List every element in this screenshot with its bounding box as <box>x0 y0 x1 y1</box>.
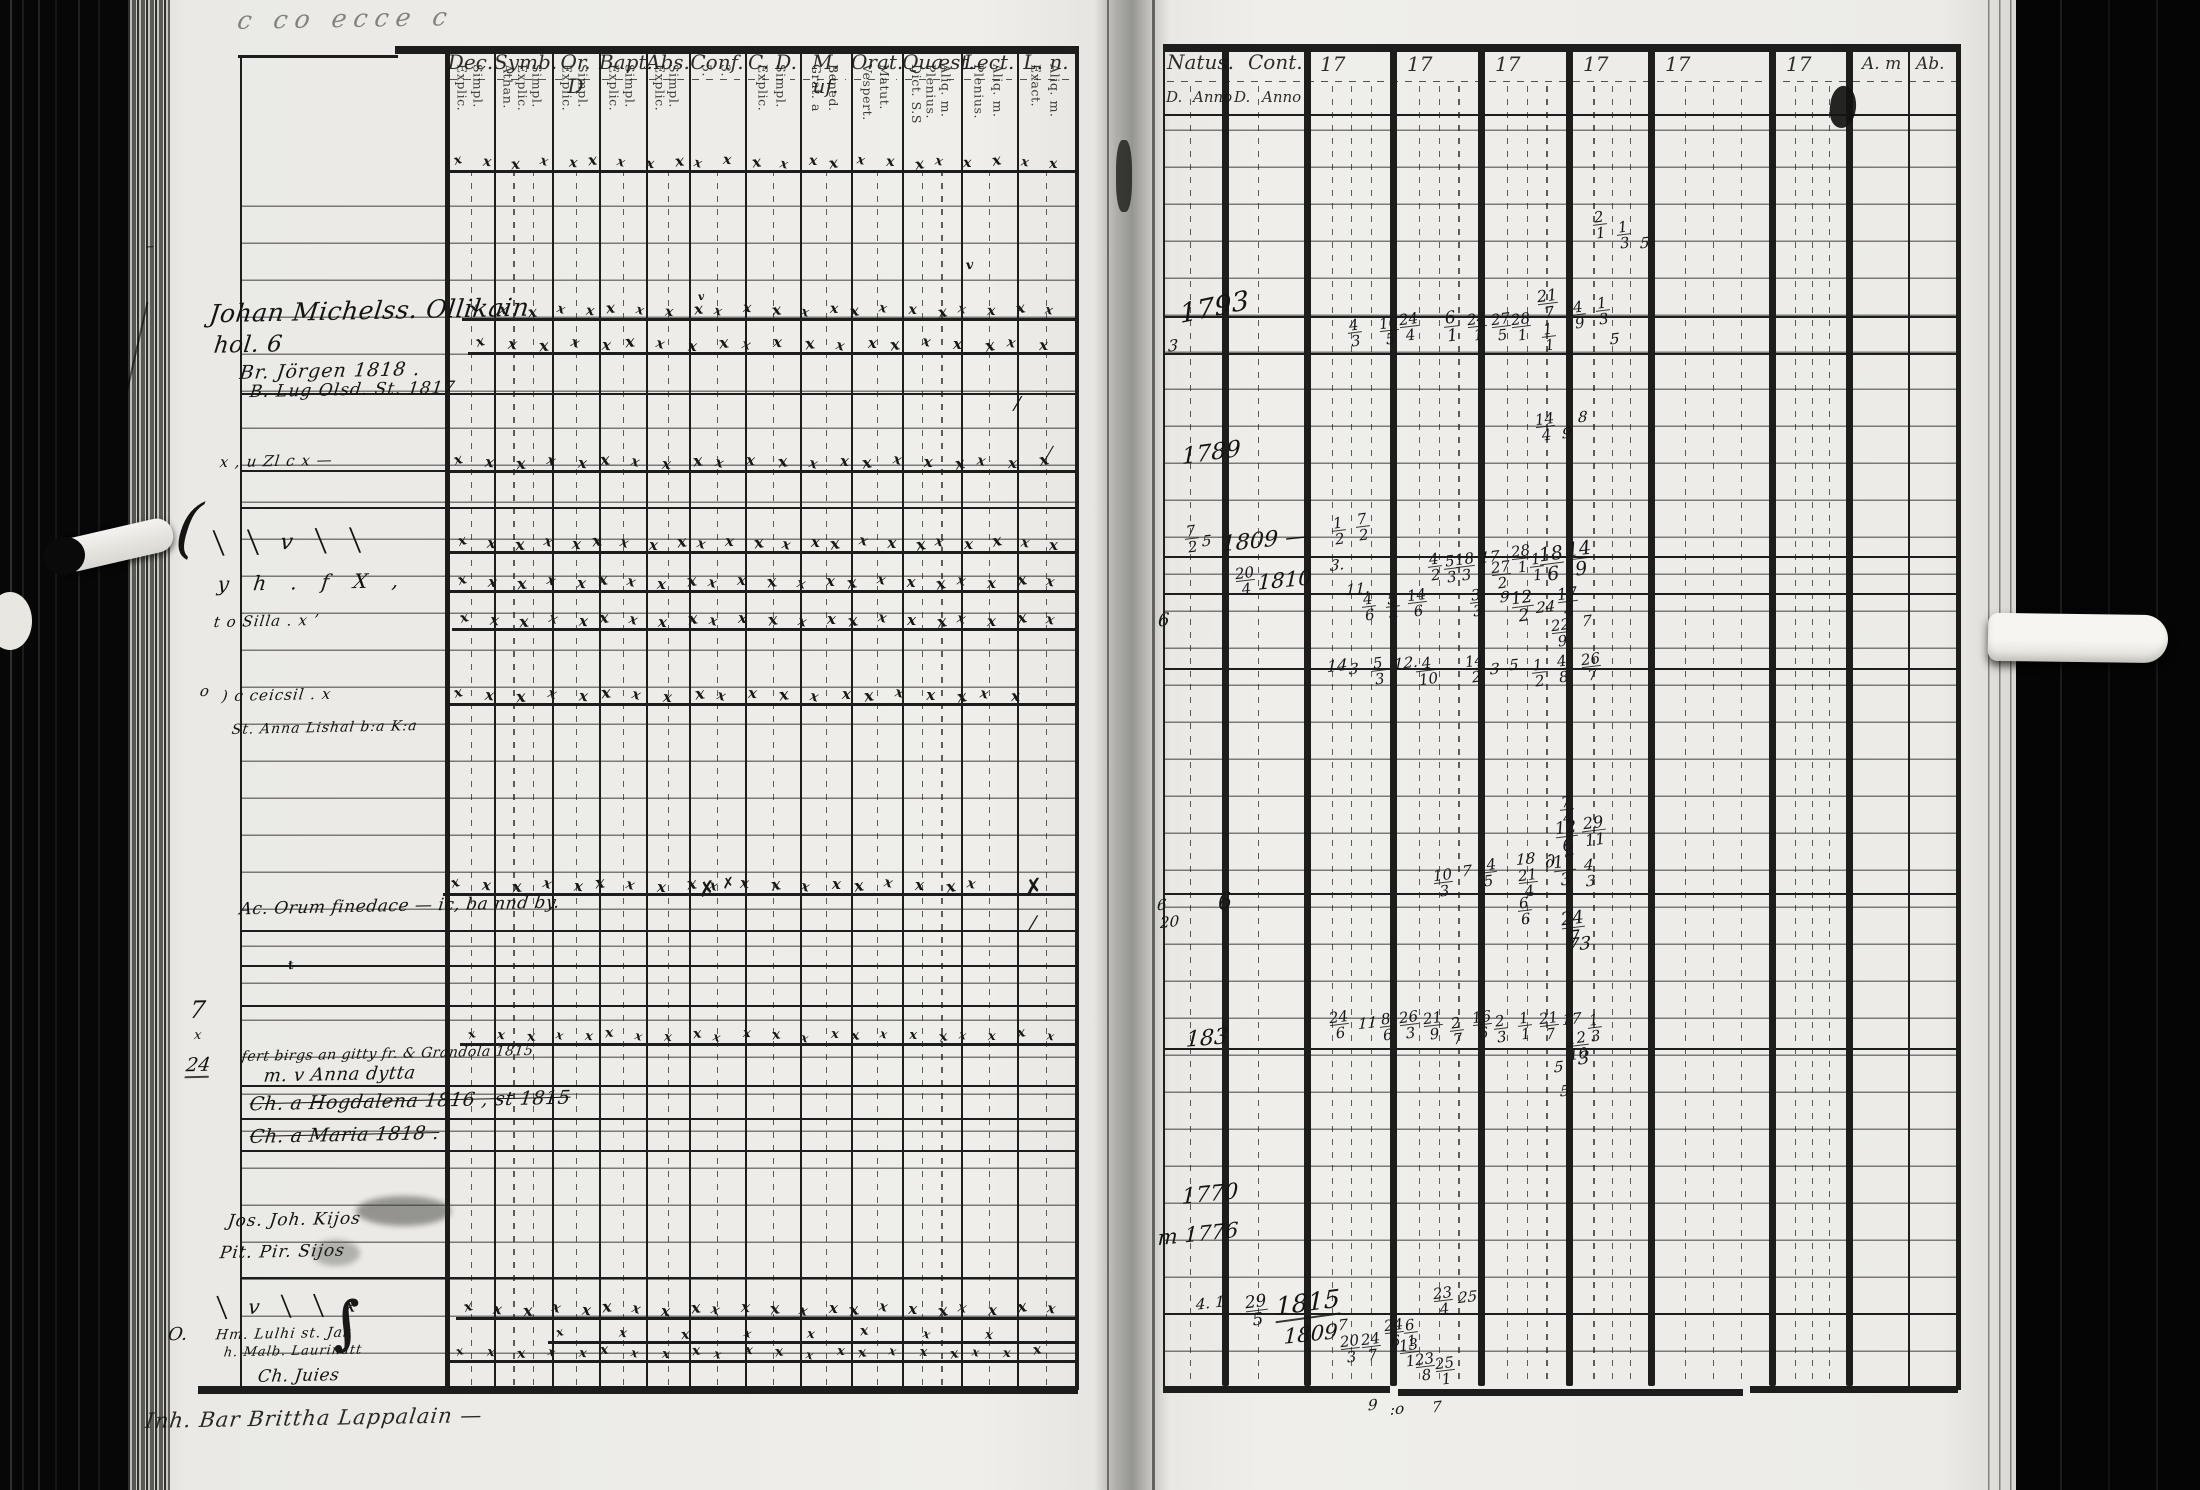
entry-line <box>460 1043 1075 1046</box>
column-border <box>599 48 601 1390</box>
gutter-fold-line <box>1107 0 1109 1490</box>
x-mark: x <box>806 1327 815 1343</box>
x-mark: x <box>578 1346 587 1362</box>
entry-line <box>446 470 1075 473</box>
x-mark: x <box>516 574 527 594</box>
year-subdivider <box>1419 86 1420 1386</box>
annotation: 3 <box>1586 871 1596 890</box>
x-mark: x <box>484 686 494 705</box>
x-mark: x <box>599 449 611 469</box>
year-column-label: 17 <box>1320 52 1360 76</box>
year-subdivider <box>1458 86 1459 1386</box>
x-mark: x <box>657 575 667 593</box>
x-mark: x <box>987 574 996 592</box>
register-book-scan: c co ecce c Inh. Bar Brittha Lappalain —… <box>0 0 2200 1490</box>
x-mark: x <box>645 156 654 172</box>
column-sublabel: Aliq. m. <box>1048 64 1063 168</box>
fraction-date: 2911 <box>1580 814 1608 849</box>
x-mark: x <box>486 1345 495 1361</box>
year-subdivider <box>1795 86 1796 1386</box>
year-subdivider <box>1351 86 1352 1386</box>
x-mark: x <box>689 1297 701 1317</box>
x-mark: x <box>738 609 748 627</box>
year-subdivider <box>1439 86 1440 1386</box>
column-sublabel: Bened. <box>826 64 841 168</box>
entry-line <box>448 1360 1075 1363</box>
register-row-name: ) c ceicsil . x <box>221 685 333 705</box>
x-mark: x <box>686 570 698 590</box>
x-mark: x <box>1019 154 1029 170</box>
column-label: L. n. <box>1017 50 1075 74</box>
x-mark: x <box>615 154 626 170</box>
x-mark: x <box>489 611 499 630</box>
x-mark: x <box>662 455 672 473</box>
x-mark: x <box>590 530 602 550</box>
register-row-name: Ch. Juies <box>257 1365 341 1387</box>
annotation: 5 <box>1610 329 1620 348</box>
fraction-date: 229 <box>1550 617 1573 650</box>
column-border <box>494 48 496 1390</box>
year-column-label: 17 <box>1665 52 1705 76</box>
column-border <box>1017 48 1019 1390</box>
year-subdivider <box>1713 86 1714 1386</box>
x-mark: x <box>693 683 705 703</box>
annotation: 14 <box>1327 655 1348 676</box>
x-mark: x <box>576 574 586 593</box>
annotation: 3 <box>1349 659 1359 678</box>
column-sublabel: Simpl. <box>622 64 637 168</box>
row-line <box>1165 1048 1956 1050</box>
x-mark: x <box>515 687 526 707</box>
x-mark: x <box>594 872 606 892</box>
fraction-date: 244 <box>1398 311 1421 344</box>
column-border <box>745 48 747 1390</box>
year-column-label: 17 <box>1583 52 1623 76</box>
row-line <box>241 1150 1075 1152</box>
x-mark: x <box>773 333 783 351</box>
fraction-date: 275 <box>1490 311 1513 344</box>
fraction-date: 142 <box>1464 653 1487 686</box>
column-sublabel: Simpl. <box>470 64 485 168</box>
year-subdivider <box>1685 86 1686 1386</box>
ink-smudge <box>356 1196 451 1226</box>
fraction-date: 186 <box>1538 544 1567 585</box>
x-mark: x <box>585 1029 594 1045</box>
column-border <box>646 48 648 1390</box>
x-mark: x <box>830 301 839 317</box>
fraction-date: 263 <box>1398 1009 1421 1042</box>
stray-mark: t <box>287 958 294 973</box>
entry-line <box>452 628 1075 631</box>
x-mark: x <box>578 612 588 631</box>
x-mark: x <box>648 536 658 554</box>
x-mark: x <box>586 303 595 320</box>
fraction-date: 183 <box>1454 551 1477 584</box>
fraction-date: 246 <box>1328 1009 1351 1042</box>
column-sublabel: Explic. <box>652 64 667 168</box>
x-mark: x <box>618 1326 627 1342</box>
book-strap-right <box>1988 613 2169 664</box>
year-subdivider <box>1593 86 1594 1386</box>
x-mark: x <box>887 534 896 552</box>
entry-line <box>456 1317 1075 1320</box>
x-mark: x <box>811 533 820 551</box>
x-mark: x <box>1038 336 1047 354</box>
x-mark: x <box>601 1296 613 1316</box>
x-mark: x <box>988 1029 996 1044</box>
x-mark: x <box>826 572 835 590</box>
x-mark: x <box>578 454 588 473</box>
fraction-date: 203 <box>1339 1333 1362 1366</box>
column-label: Conf. <box>689 50 745 74</box>
x-mark: x <box>908 1300 917 1318</box>
x-mark: x <box>687 608 699 628</box>
x-mark: x <box>909 1028 917 1043</box>
table-border <box>1956 44 1961 1390</box>
fraction-date: 105 <box>1378 315 1401 348</box>
tail-divider <box>1908 48 1910 1386</box>
x-mark: x <box>752 532 764 552</box>
stray-mark: ✗ <box>696 875 717 902</box>
x-mark: x <box>518 612 529 632</box>
year-column-label: 17 <box>1786 52 1826 76</box>
annotation: 17 <box>1562 1009 1582 1029</box>
right-page-edge <box>1984 0 2016 1490</box>
x-mark: x <box>487 573 497 592</box>
x-mark: x <box>985 1328 994 1343</box>
x-mark: x <box>481 876 491 895</box>
entry-line <box>468 352 1075 355</box>
register-row-name: t o Silla . x ’ <box>213 611 321 631</box>
column-border <box>902 48 904 1390</box>
year-subdivider <box>1527 86 1528 1386</box>
x-mark: x <box>486 534 496 553</box>
margin-mark: x <box>193 1028 202 1043</box>
x-mark: x <box>926 686 935 704</box>
column-label: Lect. <box>961 50 1017 74</box>
x-mark: x <box>571 535 581 554</box>
year-subdivider <box>1812 86 1813 1386</box>
margin-mark: 7 <box>188 996 207 1024</box>
row-line <box>241 1005 1075 1007</box>
annotation: 25 <box>1458 1287 1478 1307</box>
fraction-date: 251 <box>1434 1355 1457 1388</box>
x-mark: x <box>538 336 549 356</box>
book-spine-left <box>0 0 128 1490</box>
column-sublabel: Exact. <box>1028 64 1043 168</box>
x-mark: x <box>920 1345 928 1360</box>
x-mark: x <box>1003 1346 1011 1361</box>
annotation: 4. 1 <box>1196 1292 1225 1313</box>
table-border <box>1163 1386 1390 1393</box>
column-sublabel: Plenius. <box>924 64 939 168</box>
x-mark: x <box>658 613 668 631</box>
entry-line <box>446 703 1075 706</box>
x-mark: x <box>908 302 916 318</box>
column-sublabel: Dict. S.S <box>909 64 924 168</box>
x-mark: x <box>907 611 916 629</box>
x-mark: x <box>581 1301 591 1320</box>
x-mark: x <box>987 303 996 319</box>
x-mark: x <box>933 153 943 169</box>
x-mark: x <box>482 154 492 171</box>
x-mark: x <box>1011 687 1020 705</box>
x-mark: x <box>522 1301 533 1321</box>
x-mark: x <box>664 304 673 320</box>
year-column-label: 17 <box>1495 52 1535 76</box>
x-mark: x <box>987 1301 996 1319</box>
register-row-name: m. v Anna dytta <box>263 1062 417 1086</box>
annotation: 183 <box>1185 1024 1229 1053</box>
row-line <box>241 930 1075 932</box>
annotation: 24 <box>1536 597 1556 617</box>
x-mark: x <box>673 151 684 170</box>
fraction-date: 295 <box>1244 1293 1270 1330</box>
x-mark: x <box>725 532 735 550</box>
fraction-date: 241 <box>1466 311 1489 344</box>
x-mark: x <box>598 607 610 627</box>
annotation: 8 <box>1578 407 1588 426</box>
x-mark: x <box>687 337 697 355</box>
x-mark: x <box>587 151 598 170</box>
year-subdivider <box>1332 86 1333 1386</box>
x-mark: x <box>924 453 933 471</box>
row-grid <box>1165 94 1956 1386</box>
entry-line <box>450 590 1075 593</box>
column-label: C. D. <box>745 50 800 74</box>
fraction-date: 126 <box>1554 819 1580 856</box>
ink-smudge <box>312 1240 360 1266</box>
annotation: 73 <box>1568 933 1591 957</box>
x-mark: x <box>601 336 611 355</box>
annotation: 5 <box>1560 1081 1570 1100</box>
x-mark: x <box>663 688 673 706</box>
year-subdivider <box>1741 86 1742 1386</box>
column-border <box>851 48 853 1390</box>
fraction-date: 122 <box>1510 589 1536 626</box>
x-mark: x <box>837 1344 845 1359</box>
column-sublabel: Plenius. <box>972 64 987 168</box>
row-line <box>1165 893 1956 895</box>
fraction-date: 217 <box>1536 287 1560 322</box>
margin-mark: 24 <box>185 1054 212 1079</box>
column-sublabel: Explic. <box>515 64 530 168</box>
x-mark: x <box>661 1302 671 1320</box>
gutter-fold-line <box>1152 0 1155 1490</box>
year-subdivider <box>1612 86 1613 1386</box>
annotation: 7 <box>1432 1397 1442 1416</box>
annotation: 5 <box>1640 233 1650 252</box>
x-mark: x <box>744 1343 752 1358</box>
row-line <box>241 1118 1075 1120</box>
x-mark: x <box>743 300 752 316</box>
header-divider <box>1167 81 1956 82</box>
year-subdivider <box>1546 86 1547 1386</box>
column-sublabel: Matut. <box>877 64 892 168</box>
x-mark: x <box>964 535 973 553</box>
annotation: 7 <box>1462 861 1472 880</box>
column-sublabel: Simpl. <box>774 64 789 168</box>
annotation: 11 <box>1358 1013 1378 1033</box>
register-row-name: ╲ ╲ v ╲ ╲ <box>210 528 370 556</box>
annotation: ∂ <box>1545 847 1556 872</box>
cont-column-label: Cont. <box>1248 50 1318 74</box>
x-mark: x <box>661 1347 670 1362</box>
stray-mark: v <box>965 258 975 274</box>
margin-mark: O. <box>167 1324 189 1345</box>
x-mark: x <box>953 335 962 353</box>
fraction-date: 145 <box>1476 857 1499 890</box>
x-mark: x <box>597 569 609 589</box>
fraction-date: 166 <box>1471 1009 1494 1042</box>
fraction-date: 217 <box>1538 1010 1561 1043</box>
x-mark: x <box>1049 536 1059 554</box>
x-mark: x <box>676 531 688 551</box>
table-border <box>1075 46 1079 1390</box>
x-mark: x <box>963 155 972 171</box>
register-row-name: hol. 6 <box>212 331 284 358</box>
x-mark: x <box>832 875 841 893</box>
column-border <box>689 48 691 1390</box>
x-mark: x <box>723 152 732 168</box>
annotation: 6 <box>1216 889 1233 917</box>
column-border <box>552 48 554 1390</box>
fraction-date: 149 <box>1566 539 1595 580</box>
annotation: 3. <box>1330 555 1345 575</box>
x-mark: x <box>839 452 848 470</box>
fraction-date: 267 <box>1580 651 1603 684</box>
x-mark: x <box>740 1298 750 1316</box>
fraction-date: 144 <box>1534 411 1557 444</box>
x-mark: x <box>623 331 635 351</box>
x-mark: x <box>987 612 996 630</box>
x-mark: x <box>748 684 758 702</box>
annotation: 9 <box>1500 587 1510 606</box>
x-mark: x <box>915 876 924 894</box>
x-mark: x <box>515 454 526 474</box>
annotation: 3 <box>1578 1047 1590 1069</box>
x-mark: x <box>740 874 750 892</box>
fraction-date: 173 <box>1552 853 1578 890</box>
row-line <box>1165 316 1956 318</box>
fraction-date: 234 <box>1432 1285 1455 1318</box>
column-border <box>800 48 802 1390</box>
year-subdivider <box>1371 86 1372 1386</box>
book-spine-right <box>2016 0 2200 1490</box>
row-line <box>241 965 1075 967</box>
row-line <box>241 1277 1075 1279</box>
fraction-date: 103 <box>1432 867 1455 900</box>
year-subdivider <box>1630 86 1631 1386</box>
year-subdivider <box>1507 86 1508 1386</box>
annotation: 7 <box>1582 611 1592 630</box>
x-mark: x <box>827 610 836 628</box>
subcolumn-label: Anno <box>1193 88 1237 106</box>
x-mark: x <box>809 153 818 169</box>
column-sublabel: Explic. <box>607 64 622 168</box>
x-mark: x <box>737 571 747 589</box>
fraction-date: 219 <box>1422 1010 1445 1043</box>
annotation: 5 <box>1202 531 1212 550</box>
entry-line <box>462 318 1075 321</box>
subcolumn-divider <box>1258 86 1259 1386</box>
row-line <box>241 1085 1075 1087</box>
annotation: :o <box>1390 1399 1405 1419</box>
x-mark: x <box>507 335 517 354</box>
x-mark: x <box>830 1027 838 1042</box>
x-mark: x <box>1049 156 1058 172</box>
column-border <box>961 48 963 1390</box>
page-gutter <box>1094 0 1170 1490</box>
table-border <box>238 55 398 58</box>
x-mark: x <box>484 453 494 472</box>
x-mark: x <box>573 877 583 896</box>
x-mark: x <box>497 1028 506 1044</box>
x-mark: x <box>600 682 612 702</box>
adm-column-label: A. m <box>1862 54 1908 74</box>
x-mark: x <box>867 334 876 352</box>
ab-column-label: Ab. <box>1916 54 1956 74</box>
register-row-name: Jos. Joh. Kijos <box>227 1209 363 1232</box>
x-mark: x <box>514 535 525 555</box>
annotation: 9 <box>1562 423 1572 442</box>
table-border <box>1750 1386 1958 1393</box>
annotation: 3 <box>1490 659 1500 678</box>
margin-mark: ( <box>172 492 206 567</box>
fraction-date: 146 <box>1406 587 1429 620</box>
stray-mark: ✗ <box>1022 873 1045 902</box>
margin-mark: o <box>199 682 210 700</box>
row-line <box>1165 353 1956 355</box>
left-page-edge <box>128 0 170 1490</box>
x-mark: x <box>829 1299 838 1317</box>
annotation: 5 <box>1509 655 1519 674</box>
annotation: 9 <box>1368 1395 1378 1414</box>
register-row-name: y h . f X , <box>216 568 409 596</box>
x-mark: x <box>1008 454 1017 472</box>
fraction-date: 247 <box>1360 1331 1383 1364</box>
subcolumn-label: Anno <box>1262 88 1306 106</box>
x-mark: x <box>578 687 588 706</box>
x-mark: x <box>907 573 916 591</box>
natus-column-label: Natus. <box>1167 50 1237 74</box>
annotation: 5 <box>1554 1057 1564 1076</box>
x-mark: x <box>742 1026 750 1041</box>
fraction-date: 281 <box>1510 311 1533 344</box>
register-row-name: Ch. a Maria 1818 . <box>248 1122 440 1148</box>
x-mark: x <box>841 685 850 703</box>
fraction-date: 410 <box>1414 655 1441 688</box>
row-line <box>241 507 1075 509</box>
fraction-date: 204 <box>1234 565 1257 598</box>
column-sublabel: Explic. <box>560 64 575 168</box>
column-sublabel: Athan. <box>501 64 516 168</box>
column-sublabel: Aliq. m. <box>938 64 953 168</box>
x-mark: x <box>886 154 894 170</box>
x-mark: x <box>746 451 756 469</box>
year-subdivider <box>1829 86 1830 1386</box>
register-row-name: x , u Zl c x — <box>219 451 334 471</box>
column-sublabel: 5. <box>700 64 715 168</box>
stray-mark: ✗ <box>721 873 736 893</box>
x-mark: x <box>718 332 730 352</box>
x-mark: x <box>664 1030 673 1045</box>
x-mark: x <box>656 878 666 896</box>
x-mark: x <box>568 155 577 172</box>
table-border <box>1398 1389 1743 1396</box>
year-column-label: 17 <box>1407 52 1447 76</box>
